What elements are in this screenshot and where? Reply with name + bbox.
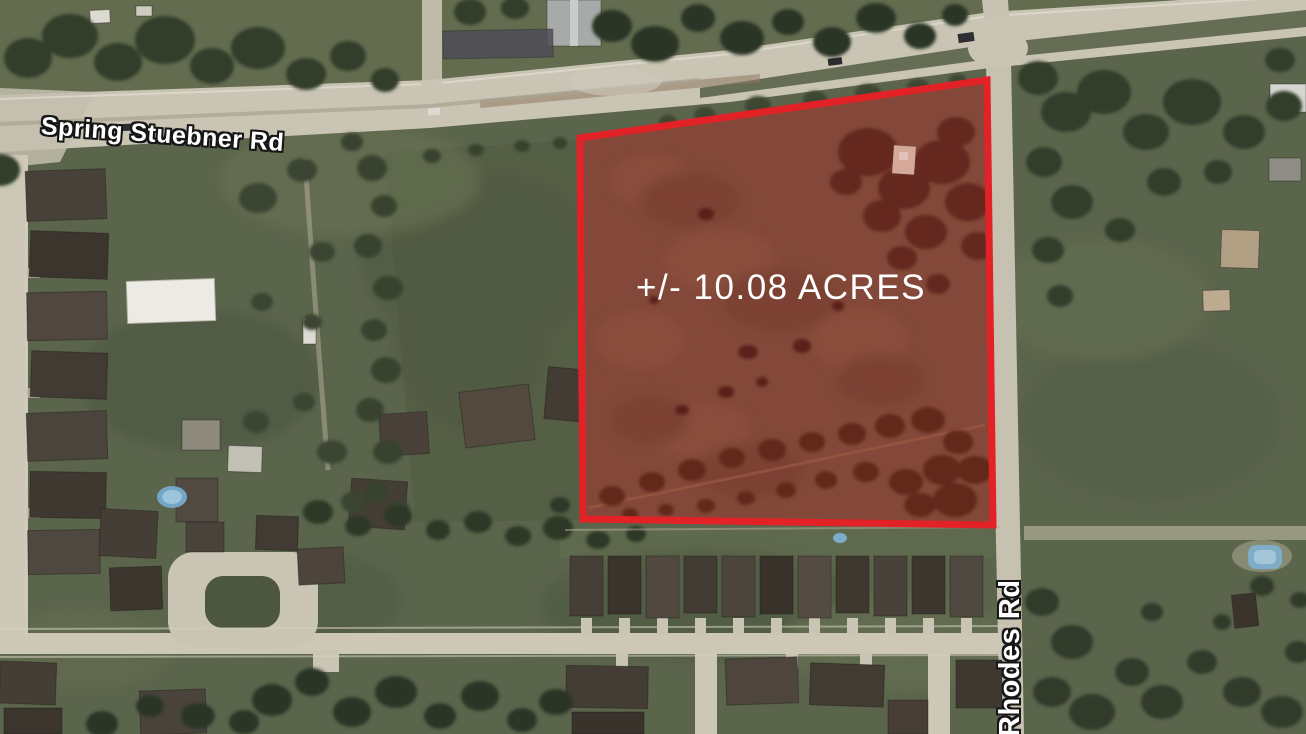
- satellite-imagery: [0, 0, 1306, 734]
- aerial-map: Spring Stuebner Rd Rhodes Rd +/- 10.08 A…: [0, 0, 1306, 734]
- road-label-rhodes: Rhodes Rd: [994, 579, 1027, 734]
- parcel-area-label: +/- 10.08 ACRES: [636, 268, 926, 308]
- houses-bottom-row: [570, 556, 983, 618]
